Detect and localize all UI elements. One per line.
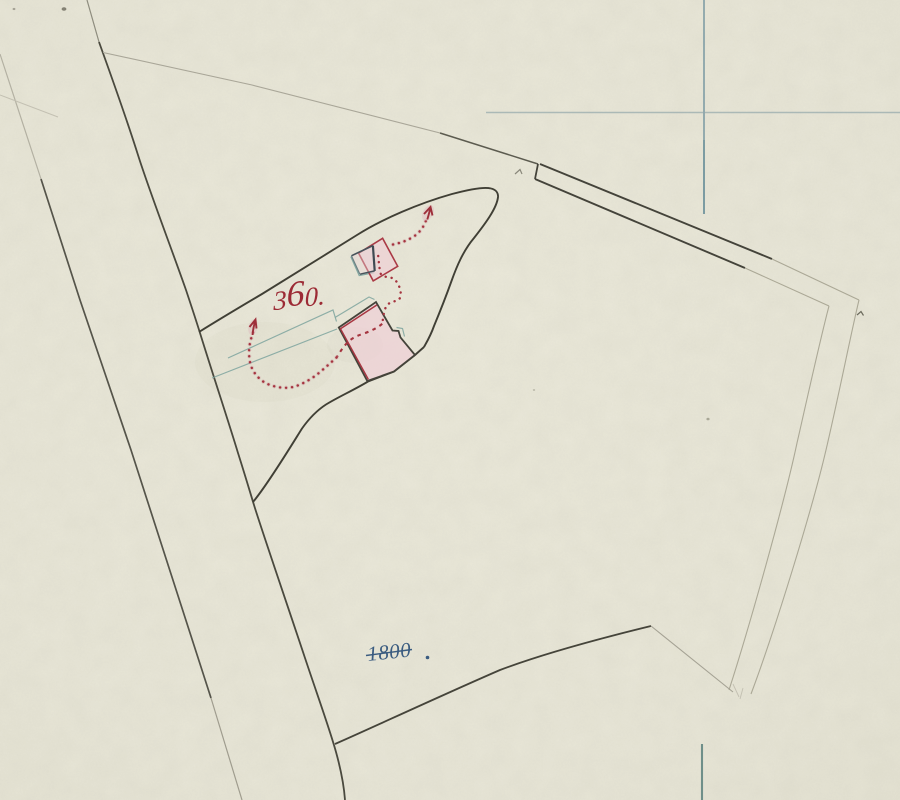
svg-text:1800: 1800 [366, 638, 412, 666]
